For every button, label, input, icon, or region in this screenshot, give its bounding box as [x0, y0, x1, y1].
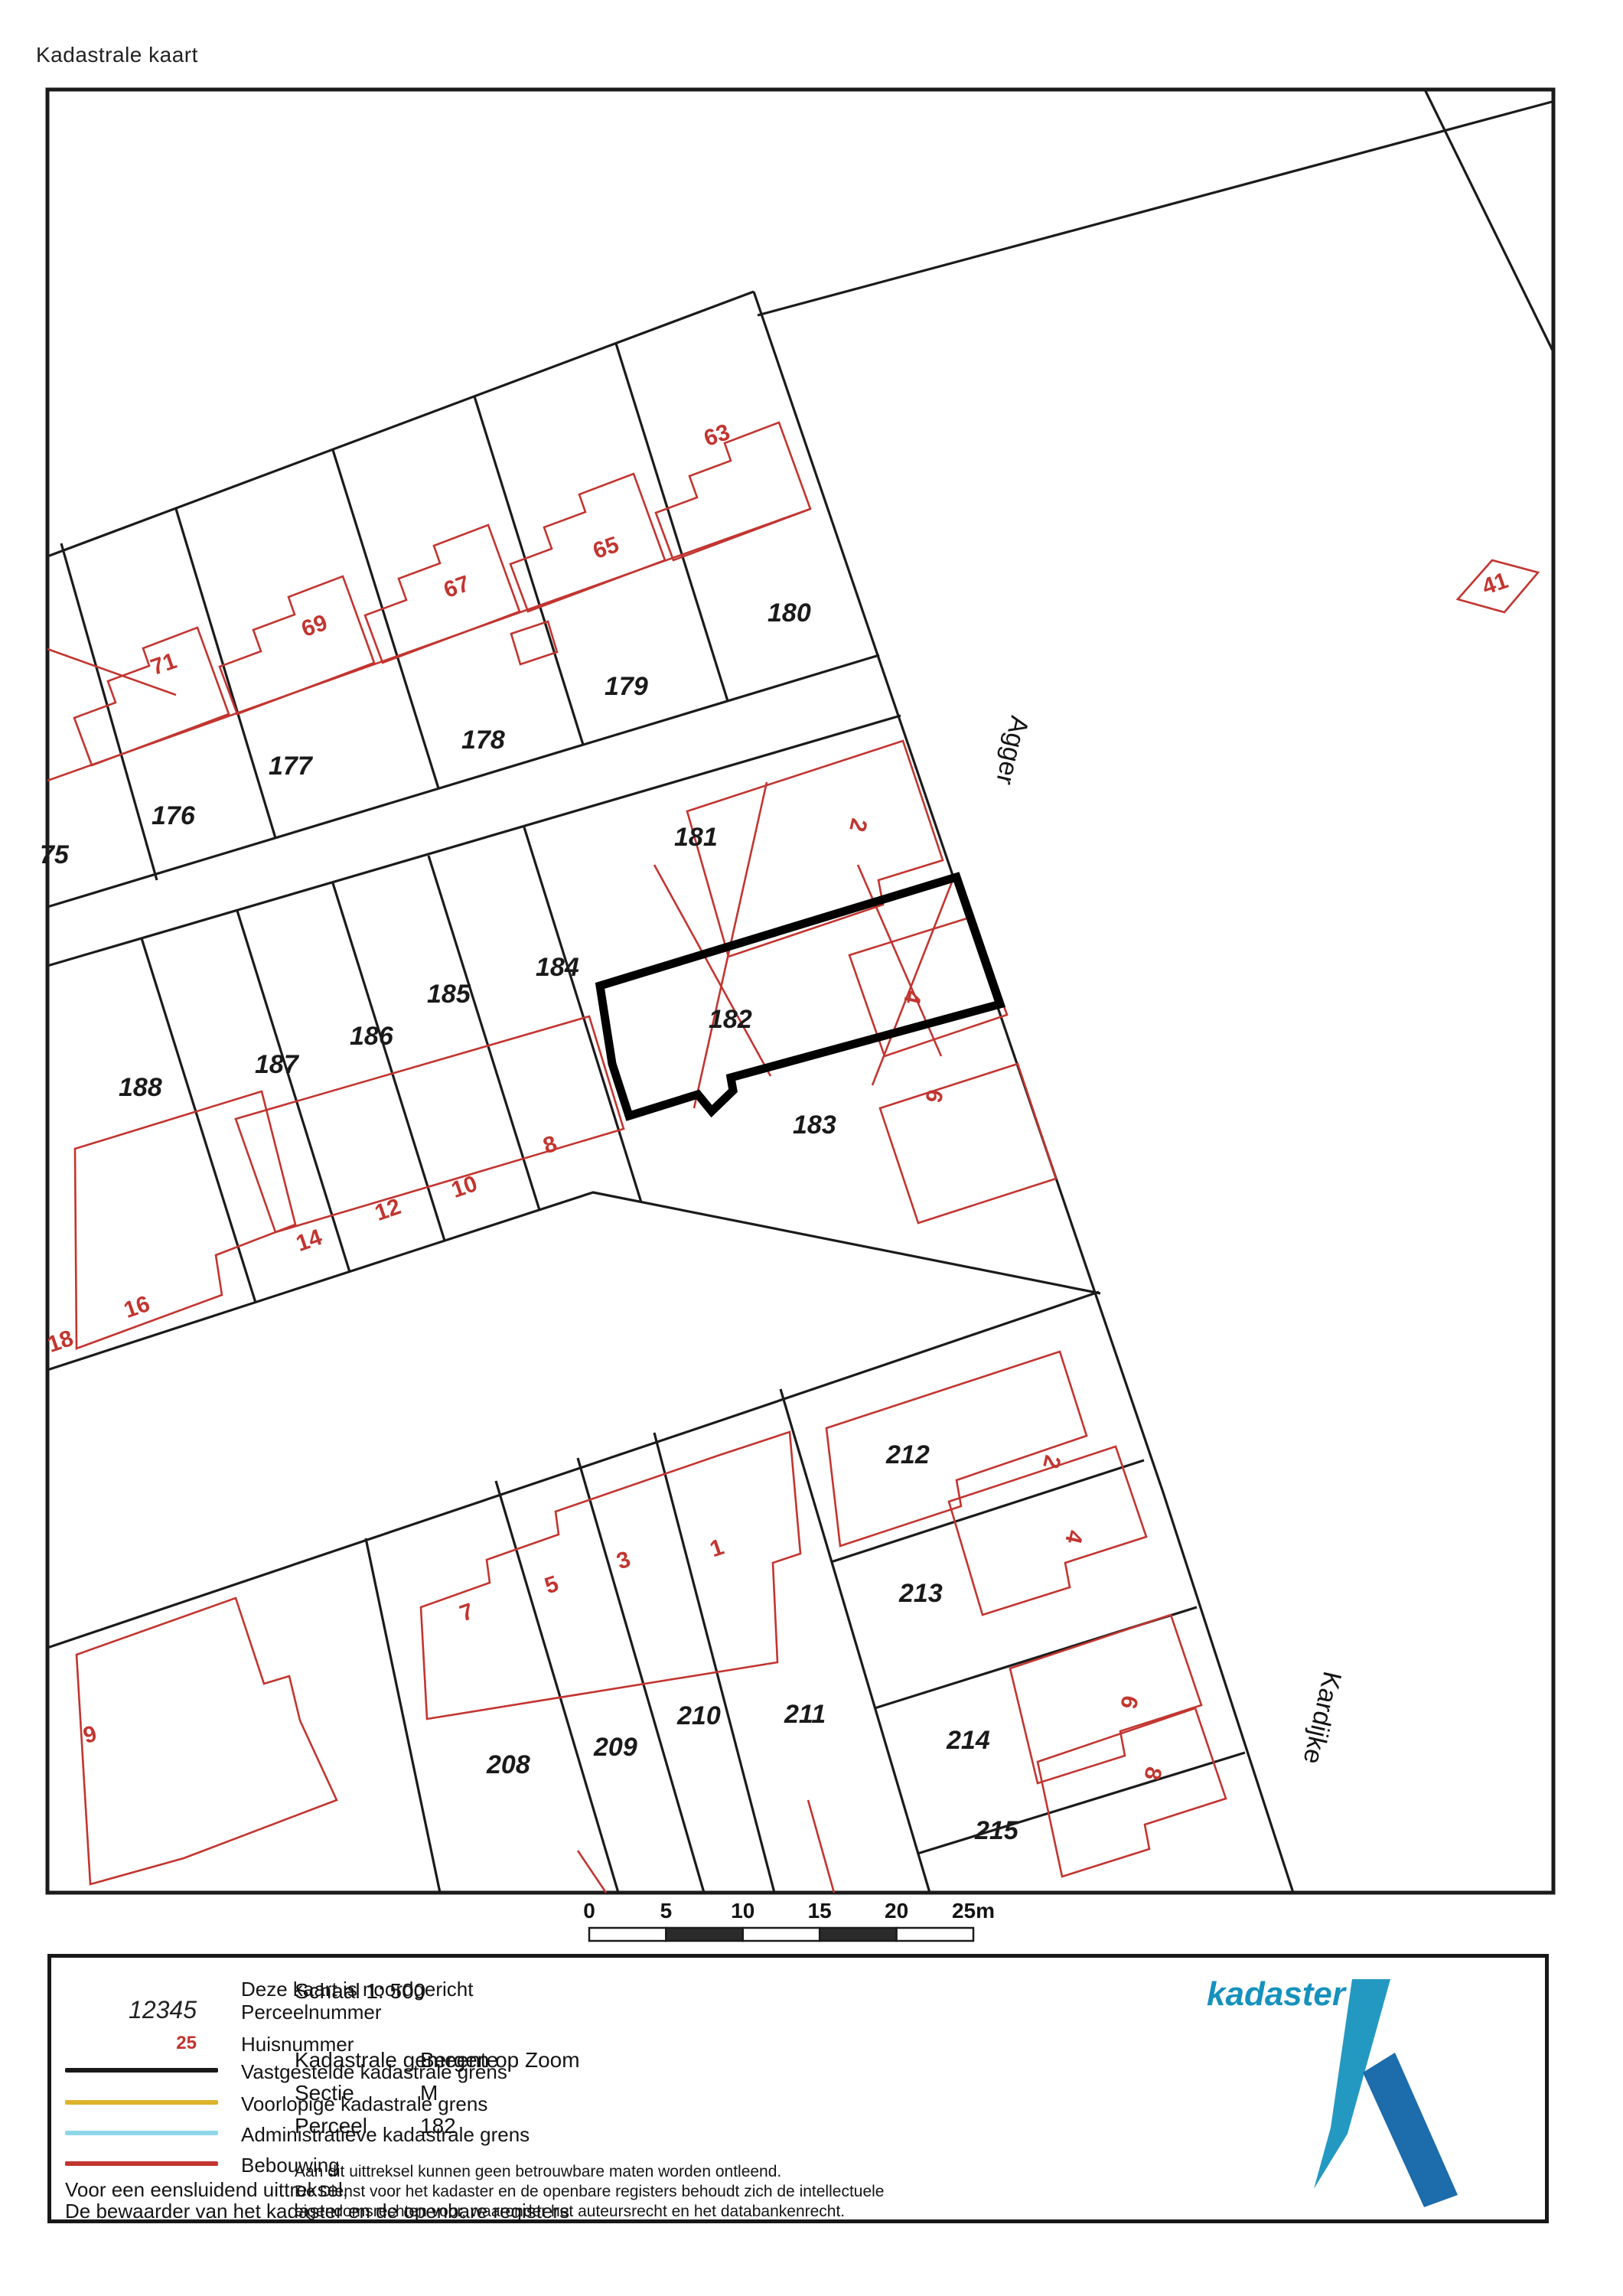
house-number: 9 [80, 1721, 99, 1749]
cadastral-boundary [429, 856, 539, 1210]
disclaimer-line: eigendomsrechten voor, waaronder het aut… [295, 2203, 845, 2221]
cadastral-boundary [917, 1753, 1245, 1854]
disclaimer-line: De Dienst voor het kadaster en de openba… [295, 2183, 884, 2201]
house-number: 6 [1115, 1693, 1142, 1711]
parcel-label: 185 [427, 980, 471, 1009]
building-outline [1038, 1708, 1226, 1877]
building-line [808, 1800, 834, 1893]
legend-parcelnumber-sample: 12345 [51, 1996, 197, 2024]
parcel-label: 210 [676, 1701, 721, 1730]
parcel-label: 209 [593, 1733, 637, 1762]
building-outline [220, 576, 374, 714]
parcel-label: 180 [768, 598, 811, 628]
map-border [47, 90, 1553, 1893]
cadastral-boundary [47, 292, 754, 556]
parcel-label: 214 [946, 1726, 990, 1755]
parcel-label: 177 [269, 752, 314, 781]
parcel-label: 208 [486, 1750, 530, 1779]
building-outline [1010, 1615, 1201, 1783]
house-number: 71 [148, 648, 180, 680]
scale-bar-segment [743, 1928, 820, 1941]
house-number: 12 [372, 1194, 404, 1226]
cadastral-boundary [831, 1460, 1144, 1562]
parcel-label: 184 [536, 953, 579, 982]
scale-bar-segment [820, 1928, 896, 1941]
kadaster-logo-text: kadaster [1207, 1975, 1348, 2013]
building-line [47, 509, 810, 781]
parcel-label: 179 [605, 672, 648, 701]
scale-bar-segment [897, 1928, 973, 1941]
cadastral-boundary [754, 292, 1293, 1893]
parcel-label: 75 [40, 840, 70, 869]
legend-label: Voorlopige kadastrale grens [241, 2092, 487, 2116]
house-number: 16 [121, 1291, 153, 1323]
street-name: Agger [990, 713, 1034, 788]
house-number: 7 [457, 1599, 477, 1627]
scale-bar-segment [589, 1928, 666, 1941]
house-number: 6 [920, 1087, 947, 1105]
cadastral-boundary [142, 938, 256, 1303]
parcel-label: 181 [674, 823, 718, 852]
scale-bar-label: 0 [583, 1899, 595, 1923]
cadastral-boundary [616, 344, 728, 701]
cadastral-boundary [654, 1433, 774, 1893]
building-line [578, 1851, 606, 1893]
house-number: 41 [1479, 568, 1511, 600]
parcel-label: 186 [350, 1022, 394, 1051]
house-number: 8 [1139, 1764, 1166, 1782]
parcel-label: 213 [898, 1579, 943, 1608]
cadastral-boundary [47, 1192, 1100, 1370]
cadastral-boundary [333, 450, 438, 788]
building-outline [75, 1091, 295, 1349]
house-number: 63 [701, 419, 733, 452]
cadastral-boundary [1425, 90, 1553, 352]
house-number: 14 [293, 1225, 326, 1257]
cadastral-map-page: Kadastrale kaart 75176177178179180181182… [0, 0, 1623, 2296]
parcel-label: 215 [974, 1816, 1019, 1845]
info-field-label: Sectie [295, 2081, 354, 2105]
building-outline [880, 1064, 1056, 1223]
parcel-label: 187 [255, 1050, 300, 1079]
building-outline [826, 1352, 1087, 1546]
house-number: 2 [1038, 1453, 1065, 1471]
house-number: 67 [441, 571, 473, 603]
scale-bar-label: 20 [885, 1899, 908, 1923]
house-number: 1 [707, 1534, 728, 1563]
info-field-label: Perceel [295, 2114, 367, 2138]
house-number: 4 [898, 988, 926, 1006]
legend-label: Perceelnummer [241, 2001, 382, 2024]
scale-bar-label: 25m [952, 1899, 995, 1923]
legend-line-swatch [65, 2131, 218, 2135]
kadaster-logo-bar-icon [1363, 2053, 1458, 2207]
parcel-label: 182 [709, 1005, 752, 1034]
legend-line-swatch [65, 2068, 218, 2073]
kadaster-logo: kadaster [1201, 1965, 1522, 2218]
house-number: 65 [590, 532, 622, 564]
building-outline [236, 1016, 624, 1232]
house-number: 3 [614, 1547, 634, 1575]
building-outline [77, 1598, 337, 1884]
parcel-label: 211 [784, 1700, 826, 1729]
cadastral-boundary [578, 1458, 704, 1893]
cadastral-boundary [496, 1481, 618, 1893]
disclaimer-line: Aan dit uittreksel kunnen geen betrouwba… [295, 2163, 781, 2181]
legend-line-swatch [65, 2161, 218, 2166]
parcel-label: 183 [793, 1110, 836, 1140]
house-number: 2 [844, 816, 872, 834]
house-number: 69 [298, 610, 331, 642]
parcel-label: 188 [119, 1073, 162, 1102]
parcel-label: 176 [152, 801, 196, 830]
scale-bar-segment [666, 1928, 742, 1941]
cadastral-boundary [474, 396, 583, 745]
cadastral-boundary [758, 102, 1552, 315]
building-outline [510, 474, 665, 612]
legend-housenumber-sample: 25 [51, 2033, 197, 2054]
cadastral-boundary [524, 827, 641, 1202]
building-outline [365, 525, 520, 663]
info-field-value: M [420, 2081, 438, 2105]
cadastral-boundary [366, 1538, 440, 1893]
street-name: Kardijke [1297, 1668, 1347, 1766]
building-outline [74, 628, 229, 765]
parcel-label: 212 [885, 1440, 930, 1469]
scale-bar-label: 5 [660, 1899, 673, 1923]
info-field-value: 182 [420, 2114, 456, 2138]
house-number: 5 [542, 1571, 562, 1600]
legend-label: Administratieve kadastrale grens [241, 2123, 530, 2147]
map-legend-footer: Deze kaart is noordgericht12345Perceelnu… [47, 1954, 1549, 2223]
cadastral-map: 7517617717817918018118218318418518618718… [0, 0, 1623, 2296]
house-number: 10 [448, 1171, 481, 1203]
legend-line-swatch [65, 2100, 218, 2105]
info-field-value: Bergen op Zoom [420, 2048, 580, 2073]
house-number: 4 [1060, 1528, 1087, 1546]
cadastral-boundary [61, 543, 157, 880]
scale-bar-label: 15 [808, 1899, 832, 1923]
house-number: 8 [540, 1131, 561, 1159]
parcel-label: 178 [461, 726, 505, 755]
scale-text: Schaal 1: 500 [295, 1979, 425, 2004]
scale-bar-label: 10 [731, 1899, 754, 1923]
cadastral-boundary [176, 509, 275, 838]
building-outline [656, 422, 810, 560]
